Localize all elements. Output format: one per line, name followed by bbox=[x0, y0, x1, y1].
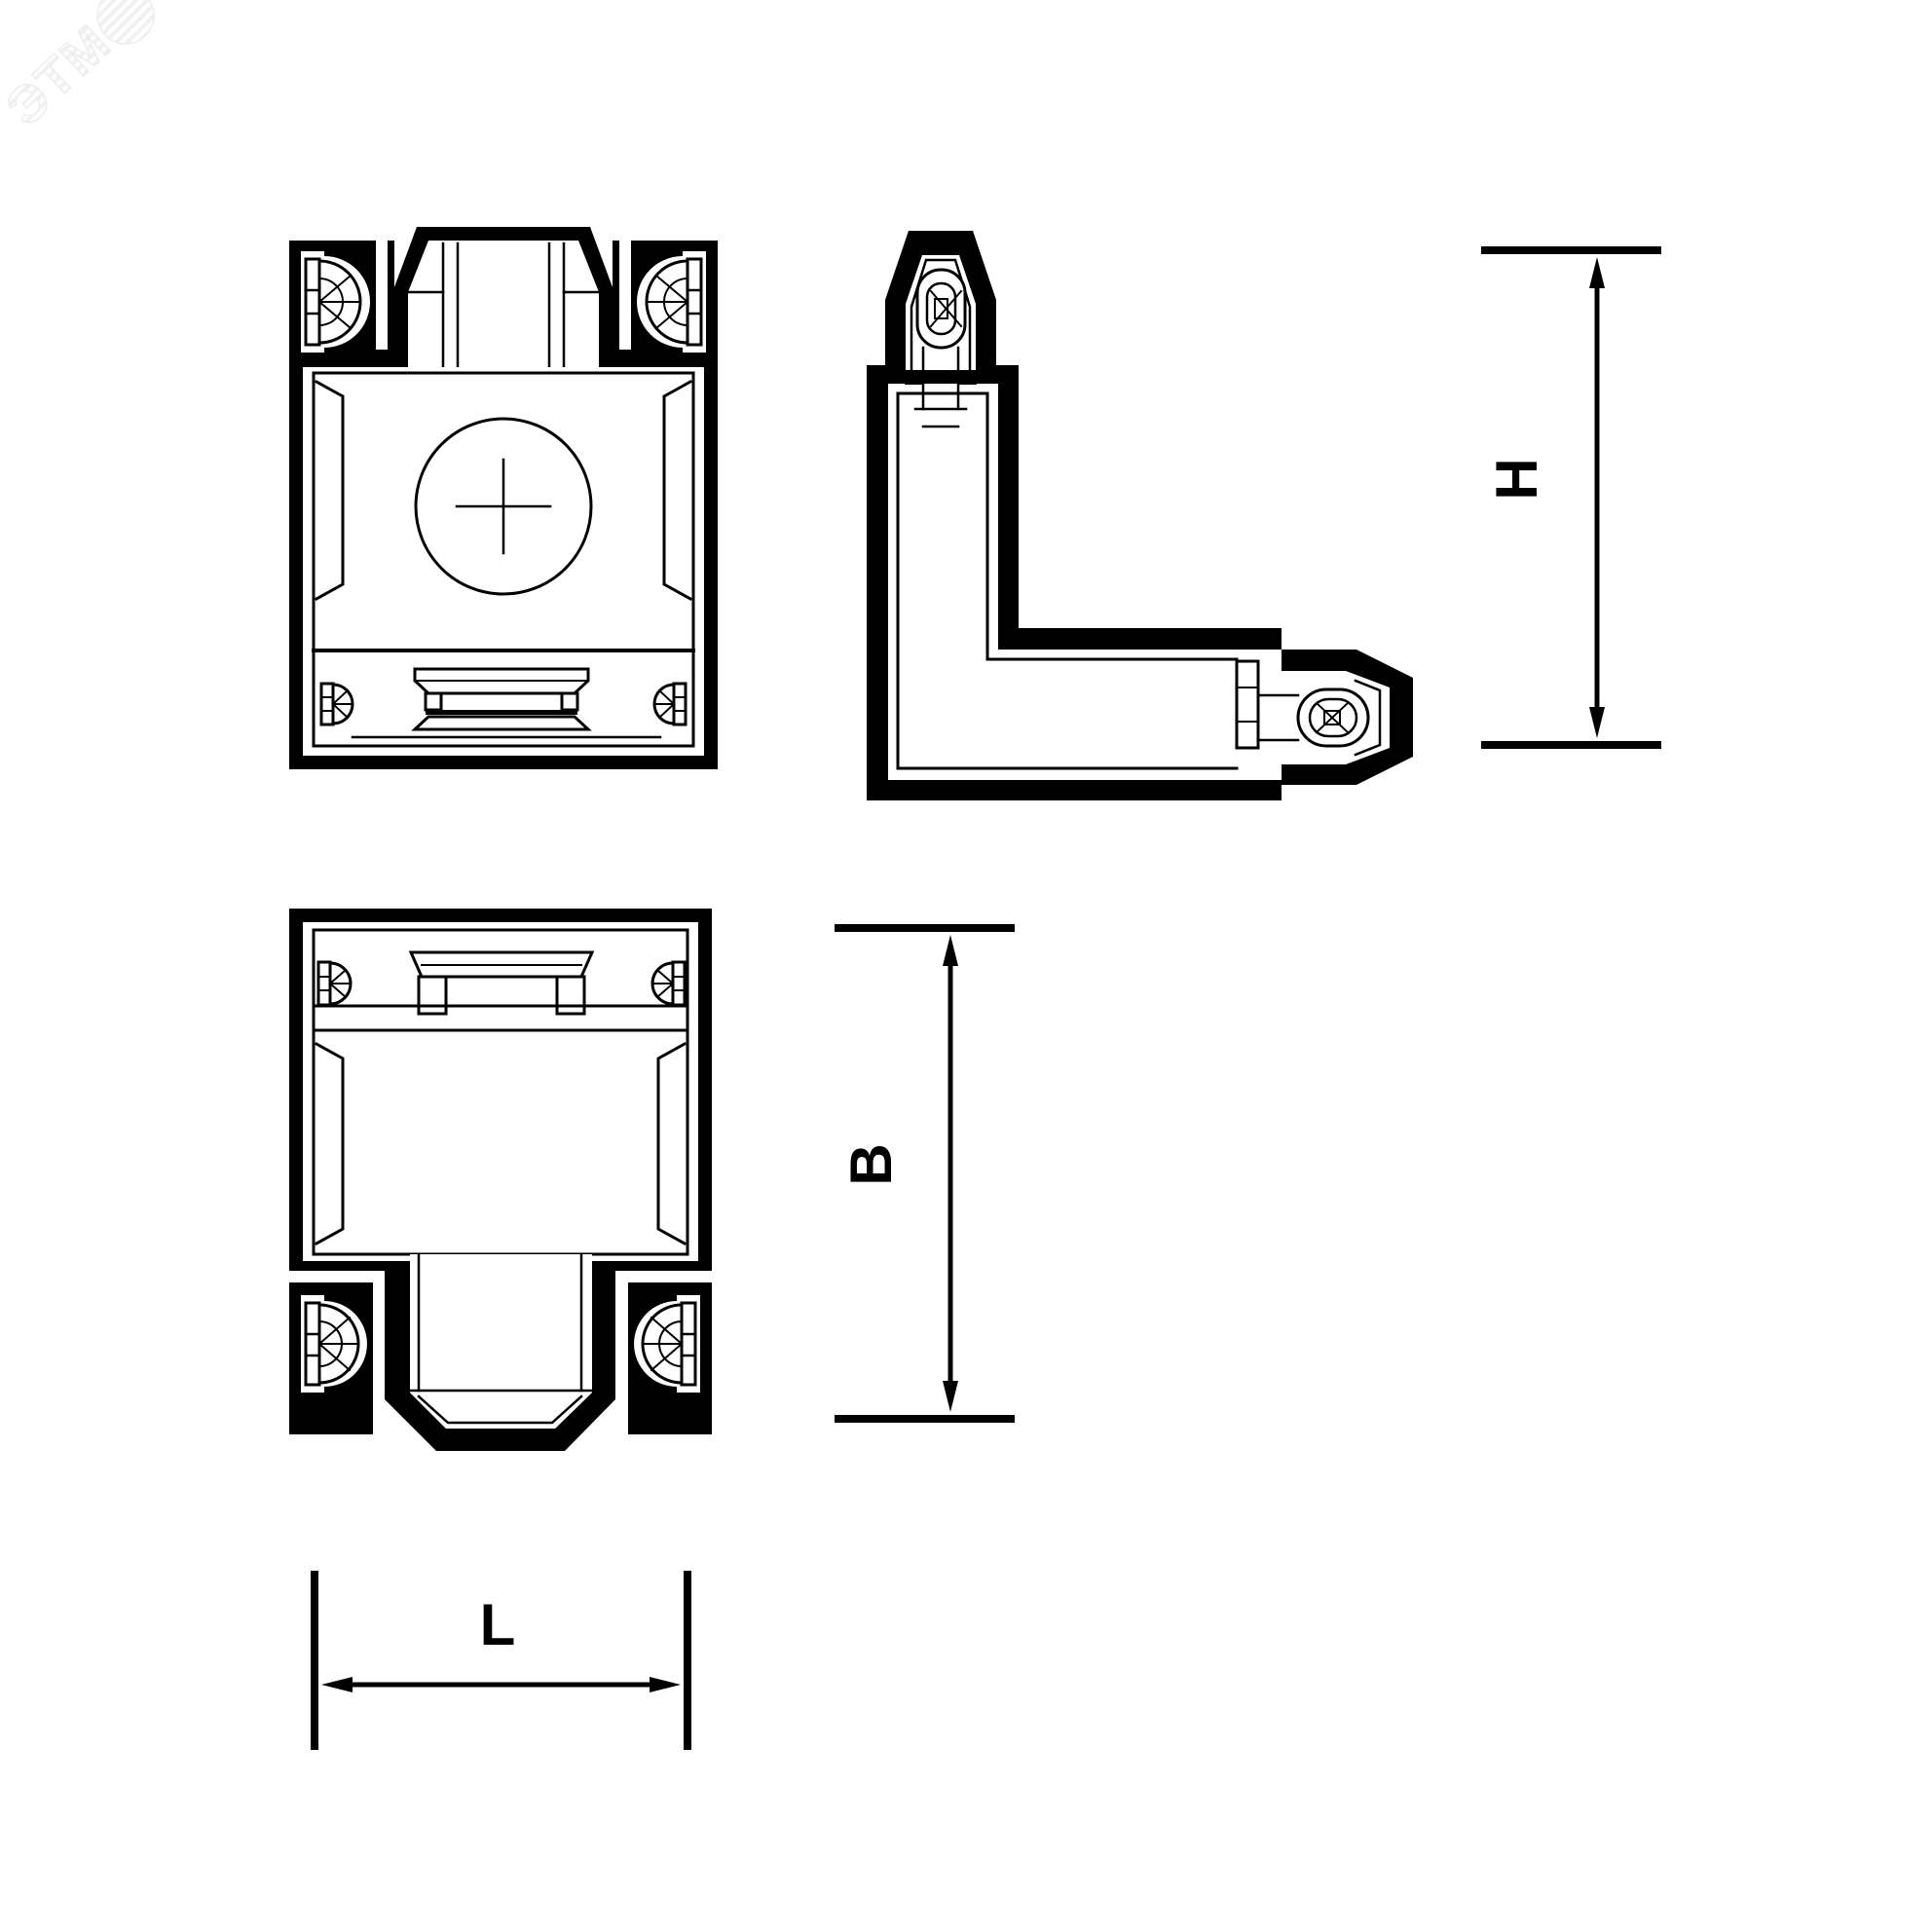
dimension-l: L bbox=[311, 1571, 691, 1750]
dim-l-arrowhead-right-icon bbox=[650, 1677, 681, 1692]
dim-h-arrowhead-up-icon bbox=[1589, 257, 1605, 288]
dimension-h: H bbox=[1481, 246, 1661, 749]
technical-drawing: ЭТМ bbox=[0, 0, 1932, 1932]
dim-b-label: B bbox=[838, 1143, 904, 1185]
dim-b-ext-top bbox=[835, 924, 1015, 932]
dim-b-arrowhead-up-icon bbox=[943, 935, 958, 966]
dim-h-arrowhead-down-icon bbox=[1589, 707, 1605, 738]
end-wall bbox=[1237, 661, 1258, 748]
dim-l-arrowhead-left-icon bbox=[321, 1677, 353, 1692]
dim-l-ext-right bbox=[684, 1571, 691, 1750]
top-view bbox=[289, 909, 712, 1451]
dim-b-ext-bottom bbox=[835, 1415, 1015, 1423]
dim-b-arrowhead-down-icon bbox=[943, 1381, 958, 1412]
dim-l-label: L bbox=[480, 1592, 516, 1657]
screw-head-top bbox=[917, 270, 965, 348]
dimension-b: B bbox=[835, 924, 1015, 1423]
dim-h-ext-top bbox=[1481, 246, 1661, 254]
side-view bbox=[867, 231, 1413, 800]
front-view bbox=[289, 227, 718, 769]
drawing-canvas: ЭТМ bbox=[0, 0, 1932, 1932]
dim-h-ext-bottom bbox=[1481, 741, 1661, 749]
screw-head-side bbox=[1298, 689, 1368, 746]
dim-l-ext-left bbox=[311, 1571, 318, 1750]
watermark: ЭТМ bbox=[0, 0, 166, 138]
knockout-circle bbox=[416, 419, 591, 594]
dim-h-label: H bbox=[1484, 458, 1549, 500]
